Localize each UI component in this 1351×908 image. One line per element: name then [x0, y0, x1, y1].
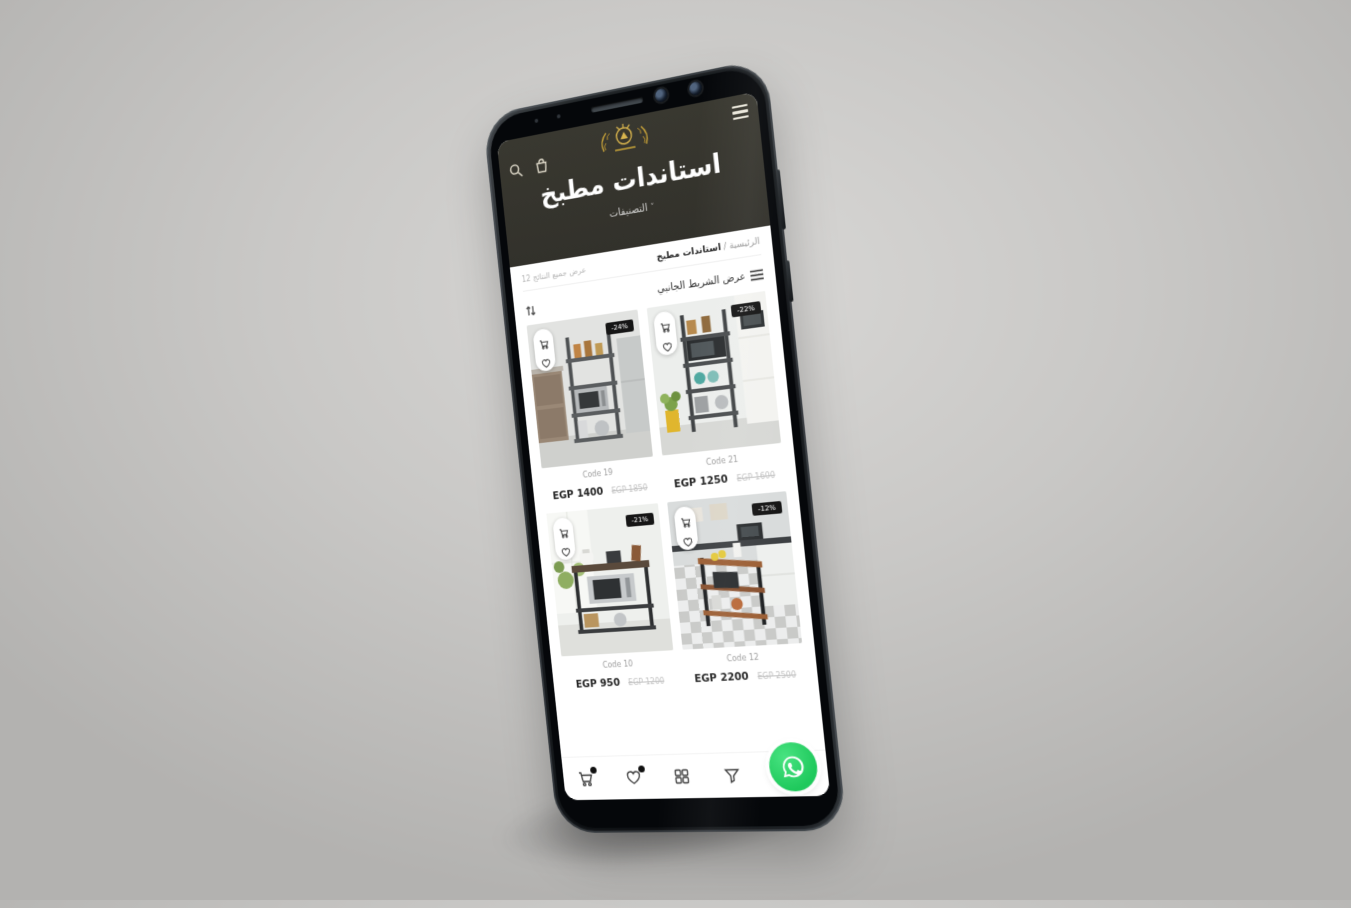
price-row: EGP 950 EGP 1200 [563, 668, 677, 692]
product-card: -24% Code 19 EGP 1400 EGP 1850 [527, 310, 657, 505]
cart-icon[interactable] [533, 156, 550, 175]
product-card: -22% Code 21 EGP 1250 EGP 1600 [647, 291, 785, 492]
wishlist-heart-icon[interactable] [560, 543, 571, 554]
breadcrumb-current: استاندات مطبخ [656, 243, 721, 263]
product-price: EGP 1250 [673, 473, 728, 490]
add-to-cart-icon[interactable] [679, 512, 691, 524]
product-price: EGP 950 [575, 677, 620, 691]
product-old-price: EGP 1200 [628, 677, 665, 688]
wishlist-heart-icon[interactable] [661, 337, 673, 349]
studio-backdrop: { "device": { "type": "smartphone-mockup… [0, 0, 1351, 900]
content-area: الرئيسية / استاندات مطبخ عرض جميع النتائ… [510, 225, 826, 757]
categories-label: التصنيفات [609, 203, 648, 220]
product-old-price: EGP 1850 [611, 483, 648, 495]
nav-cart-icon[interactable] [577, 770, 595, 788]
nav-wishlist-icon[interactable] [624, 769, 642, 787]
product-card: -12% Code 12 EGP 2200 EGP 2500 [667, 491, 806, 686]
wishlist-count-badge [638, 765, 645, 772]
nav-filter-icon[interactable] [723, 766, 742, 784]
phone-frame: استاندات مطبخ التصنيفات ˅ الرئيسية / است… [482, 58, 847, 833]
price-row: EGP 2200 EGP 2500 [685, 662, 807, 687]
menu-icon[interactable] [732, 104, 749, 121]
cart-count-badge [590, 767, 597, 774]
mockup-scene: استاندات مطبخ التصنيفات ˅ الرئيسية / است… [505, 86, 811, 834]
discount-badge: -21% [625, 513, 654, 527]
product-price: EGP 1400 [552, 486, 604, 503]
header-left-icons [508, 156, 550, 180]
wishlist-heart-icon[interactable] [681, 532, 693, 544]
search-icon[interactable] [508, 161, 525, 180]
product-card: -21% Code 10 EGP 950 EGP 1200 [546, 503, 677, 692]
product-grid: -24% Code 19 EGP 1400 EGP 1850 [527, 291, 806, 692]
product-old-price: EGP 1600 [736, 471, 775, 484]
add-to-cart-icon[interactable] [538, 334, 549, 346]
add-to-cart-icon[interactable] [558, 523, 569, 535]
wishlist-heart-icon[interactable] [540, 354, 551, 366]
nav-categories-icon[interactable] [673, 767, 692, 785]
sort-icon[interactable] [524, 302, 537, 316]
add-to-cart-icon[interactable] [659, 317, 671, 329]
discount-badge: -12% [751, 501, 782, 516]
results-count-label: عرض جميع النتائج 12 [521, 265, 586, 284]
whatsapp-icon [777, 751, 810, 782]
product-price: EGP 2200 [694, 671, 749, 686]
show-sidebar-button[interactable]: عرض الشريط الجانبي [657, 268, 764, 295]
chevron-down-icon: ˅ [650, 203, 655, 213]
show-sidebar-label: عرض الشريط الجانبي [657, 271, 746, 295]
product-old-price: EGP 2500 [757, 670, 796, 681]
breadcrumb-home-link[interactable]: الرئيسية [729, 237, 761, 252]
power-button [785, 260, 793, 302]
list-lines-icon [750, 268, 764, 281]
